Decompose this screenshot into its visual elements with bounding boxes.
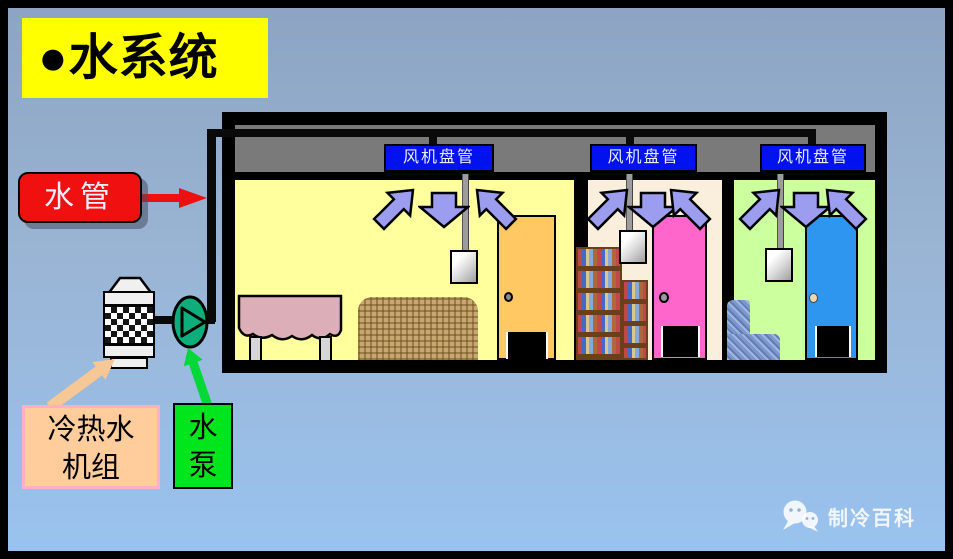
thermostat-box — [765, 248, 793, 282]
water-pipe-main — [207, 129, 816, 137]
door-knob — [504, 292, 513, 302]
airflow-arrow-down-icon — [418, 183, 470, 235]
bookshelf-tall — [576, 247, 622, 360]
door-knob — [659, 292, 669, 303]
door-window — [815, 326, 851, 357]
armchair-seat — [727, 334, 780, 360]
airflow-arrow-nw-icon — [468, 181, 520, 233]
building-wall-top — [222, 112, 887, 125]
door-window — [506, 332, 548, 359]
chiller-callout-line2: 机组 — [25, 449, 157, 487]
chiller-body — [103, 305, 155, 345]
page-title: ●水系统 — [22, 18, 268, 98]
wechat-icon — [780, 499, 820, 533]
fan-coil-unit-label: 风机盘管 — [590, 144, 697, 172]
pump-pointer-arrow-icon — [175, 340, 220, 412]
building-wall-right — [875, 112, 887, 373]
watermark: 制冷百科 — [780, 496, 940, 536]
pump-callout: 水 泵 — [173, 403, 233, 489]
chiller-band-top — [103, 291, 155, 306]
bookshelf-short — [622, 280, 648, 360]
airflow-arrow-nw-icon — [818, 181, 870, 233]
water-pipe-callout: 水管 — [18, 172, 142, 223]
airflow-arrow-ne-icon — [370, 181, 422, 233]
water-pipe-arrow-icon — [139, 187, 211, 209]
slide: ●水系统 风机盘管 风机盘管 风机盘管 — [0, 0, 953, 559]
door-window — [661, 326, 700, 357]
chiller-callout-line1: 冷热水 — [25, 411, 157, 449]
fan-coil-unit-label: 风机盘管 — [760, 144, 866, 172]
fan-coil-unit-label: 风机盘管 — [384, 144, 494, 172]
building-floor — [222, 360, 887, 373]
pump-callout-line1: 水 — [175, 409, 231, 447]
table — [236, 293, 346, 363]
airflow-arrow-nw-icon — [662, 181, 714, 233]
chiller-callout: 冷热水 机组 — [22, 405, 160, 489]
watermark-text: 制冷百科 — [828, 502, 916, 531]
building-wall-left — [222, 112, 235, 373]
thermostat-box — [450, 250, 478, 284]
door-knob — [809, 293, 818, 303]
pump-callout-line2: 泵 — [175, 447, 231, 485]
woven-sofa — [358, 297, 478, 360]
thermostat-box — [619, 230, 647, 264]
